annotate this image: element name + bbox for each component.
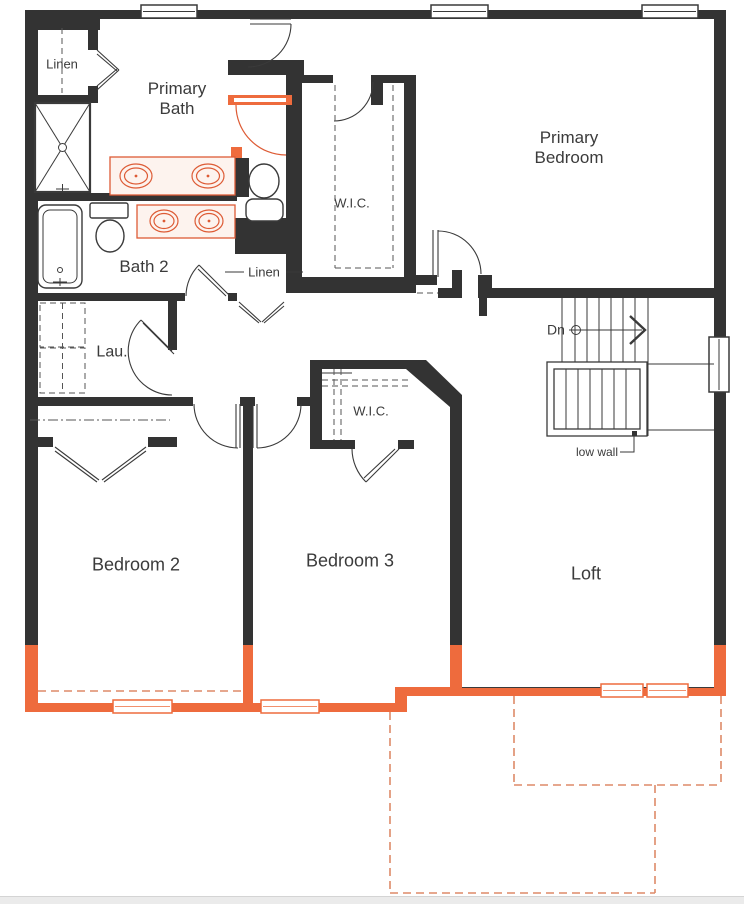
staircase <box>547 298 714 452</box>
washer-dryer <box>40 303 85 393</box>
room-label-primary-bedroom: Primary Bedroom <box>519 128 619 168</box>
room-label-bedroom-3: Bedroom 3 <box>306 550 394 571</box>
bathtub <box>38 205 82 288</box>
low-wall-label: low wall <box>576 445 618 459</box>
stairs-down-label: Dn <box>547 322 565 339</box>
room-label-wic-primary: W.I.C. <box>334 195 369 210</box>
label-linen-upper: Linen <box>46 56 78 71</box>
room-label-bath-2: Bath 2 <box>119 257 168 277</box>
label-linen-hall: Linen <box>248 264 280 279</box>
floor-plan-canvas <box>0 0 744 904</box>
page-bottom-strip <box>0 896 744 904</box>
stairs-down-arrow <box>569 316 645 344</box>
room-label-primary-bath: Primary Bath <box>137 79 217 119</box>
bath2-toilet <box>90 203 128 252</box>
primary-toilet <box>246 164 283 221</box>
floor-plan: Linen Primary Bath Primary Bedroom W.I.C… <box>0 0 744 904</box>
room-label-bedroom-2: Bedroom 2 <box>92 554 180 575</box>
primary-vanity <box>110 157 235 195</box>
room-label-wic-bedroom3: W.I.C. <box>353 403 388 418</box>
option-extension-outline <box>38 691 721 893</box>
room-label-loft: Loft <box>571 563 601 584</box>
bath2-vanity <box>137 205 235 238</box>
room-label-laundry: Lau. <box>96 344 127 363</box>
shower <box>35 103 90 192</box>
